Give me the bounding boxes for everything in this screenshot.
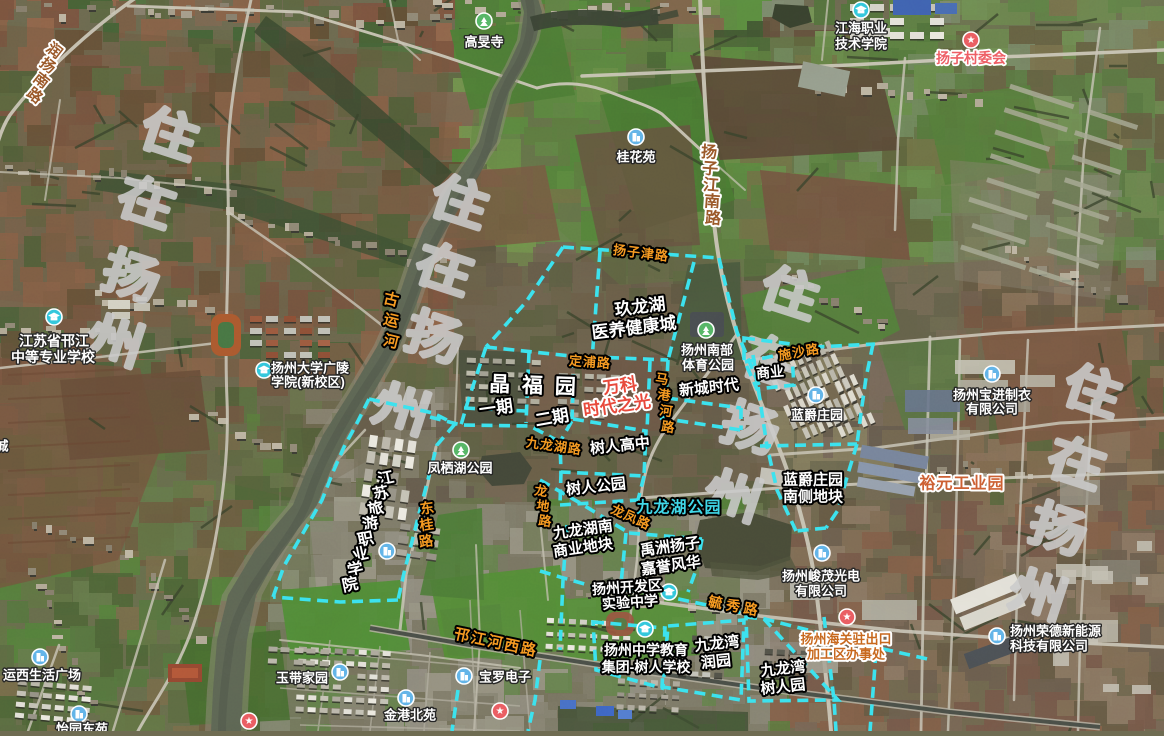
- svg-text:扬州南部: 扬州南部: [681, 343, 733, 358]
- svg-text:技术学院: 技术学院: [835, 37, 887, 52]
- svg-text:扬州宝进制衣: 扬州宝进制衣: [953, 388, 1031, 403]
- svg-text:路: 路: [704, 208, 722, 228]
- svg-text:商业: 商业: [755, 363, 784, 381]
- svg-text:扬州海关驻出口: 扬州海关驻出口: [800, 632, 891, 647]
- svg-text:东: 东: [419, 499, 435, 517]
- svg-text:桂花苑: 桂花苑: [615, 150, 655, 165]
- svg-text:高旻寺: 高旻寺: [464, 35, 503, 50]
- svg-text:子: 子: [701, 159, 718, 178]
- svg-text:江海职业: 江海职业: [835, 21, 887, 36]
- svg-text:加工区办事处: 加工区办事处: [806, 647, 886, 662]
- svg-text:有限公司: 有限公司: [966, 402, 1018, 417]
- svg-text:扬: 扬: [700, 142, 717, 162]
- svg-text:扬子村委会: 扬子村委会: [936, 50, 1007, 66]
- svg-text:蓝爵庄园: 蓝爵庄园: [783, 471, 843, 489]
- svg-text:宝罗电子: 宝罗电子: [479, 670, 531, 685]
- svg-text:南: 南: [703, 191, 720, 211]
- svg-text:扬州峻茂光电: 扬州峻茂光电: [782, 569, 860, 584]
- svg-text:扬州中学教育: 扬州中学教育: [604, 642, 688, 658]
- svg-text:裕元工业园: 裕元工业园: [918, 474, 1004, 493]
- svg-text:九龙湖公园: 九龙湖公园: [635, 498, 721, 517]
- svg-text:金港北苑: 金港北苑: [383, 708, 436, 723]
- svg-text:★: ★: [843, 612, 852, 623]
- svg-text:体育公园: 体育公园: [682, 358, 734, 373]
- svg-text:江: 江: [702, 176, 719, 195]
- svg-text:有限公司: 有限公司: [795, 584, 847, 599]
- svg-text:定浦路: 定浦路: [568, 353, 612, 371]
- svg-text:★: ★: [967, 35, 976, 46]
- svg-text:运西生活广场: 运西生活广场: [3, 668, 81, 683]
- svg-text:★: ★: [496, 706, 505, 717]
- svg-text:怡园东苑: 怡园东苑: [56, 722, 108, 732]
- svg-text:学院(新校区): 学院(新校区): [271, 375, 345, 390]
- svg-text:玉带家园: 玉带家园: [276, 671, 328, 686]
- svg-text:扬州荣德新能源: 扬州荣德新能源: [1010, 624, 1101, 639]
- svg-text:中等专业学校: 中等专业学校: [11, 349, 96, 365]
- svg-text:科技有限公司: 科技有限公司: [1010, 639, 1088, 654]
- svg-text:南侧地块: 南侧地块: [783, 488, 844, 506]
- svg-text:扬州大学广陵: 扬州大学广陵: [271, 361, 350, 376]
- svg-text:★: ★: [245, 716, 254, 727]
- svg-text:河: 河: [659, 403, 674, 420]
- svg-text:地: 地: [536, 498, 551, 515]
- svg-text:凤栖湖公园: 凤栖湖公园: [427, 461, 492, 476]
- svg-text:桂: 桂: [417, 516, 434, 534]
- svg-text:晶 福 园: 晶 福 园: [489, 373, 579, 399]
- svg-text:江苏省邗江: 江苏省邗江: [19, 333, 89, 349]
- svg-text:城: 城: [0, 439, 9, 454]
- svg-text:马: 马: [655, 371, 670, 388]
- svg-text:润园: 润园: [700, 651, 732, 672]
- svg-text:蓝爵庄园: 蓝爵庄园: [791, 408, 843, 423]
- svg-text:龙: 龙: [534, 483, 549, 500]
- svg-text:集团-树人学校: 集团-树人学校: [601, 659, 692, 675]
